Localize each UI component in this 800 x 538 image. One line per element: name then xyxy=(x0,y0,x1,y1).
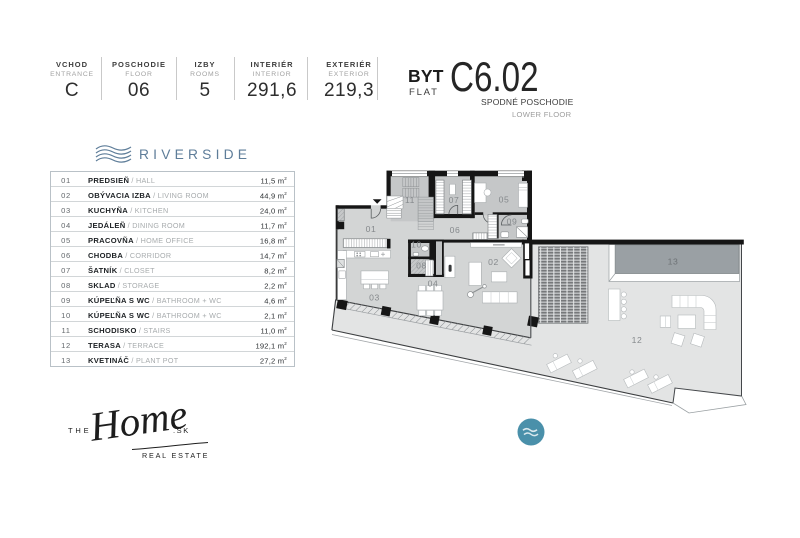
svg-text:10: 10 xyxy=(411,240,422,250)
svg-text:09: 09 xyxy=(507,217,518,227)
svg-text:11: 11 xyxy=(405,195,415,205)
svg-text:06: 06 xyxy=(450,225,461,235)
svg-text:01: 01 xyxy=(366,224,377,234)
svg-text:03: 03 xyxy=(369,293,380,303)
svg-text:08: 08 xyxy=(416,261,427,271)
svg-text:12: 12 xyxy=(632,335,643,345)
svg-text:05: 05 xyxy=(499,195,510,205)
svg-text:02: 02 xyxy=(488,257,499,267)
svg-text:13: 13 xyxy=(668,257,679,267)
svg-text:07: 07 xyxy=(449,195,460,205)
svg-text:04: 04 xyxy=(428,279,439,289)
